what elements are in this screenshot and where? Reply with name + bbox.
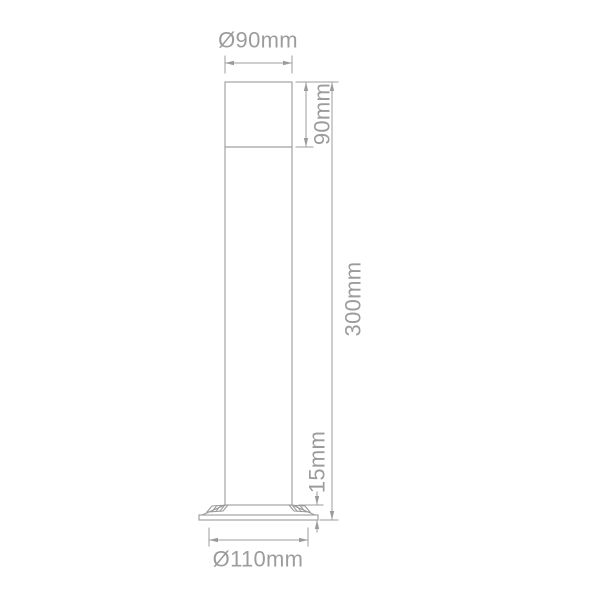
bollard-technical-drawing: Ø90mm 90mm 300mm 15mm Ø110mm <box>0 0 600 600</box>
dimension-arrow <box>304 82 308 91</box>
drawing-canvas: Ø90mm 90mm 300mm 15mm Ø110mm <box>0 0 600 600</box>
dimension-arrow <box>209 538 218 542</box>
dimension-arrow <box>299 538 308 542</box>
base-plate <box>199 515 318 520</box>
dimension-arrow <box>315 496 319 505</box>
bollard-outline <box>199 82 318 520</box>
bollard-body <box>225 147 292 505</box>
label-top-diameter: Ø90mm <box>218 28 298 53</box>
dimension-arrow <box>283 61 292 65</box>
dimension-arrow <box>315 520 319 529</box>
dimension-labels: Ø90mm 90mm 300mm 15mm Ø110mm <box>213 28 366 572</box>
dimension-arrow <box>304 138 308 147</box>
label-overall-height: 300mm <box>341 262 366 337</box>
dimension-arrow <box>225 61 234 65</box>
label-head-height: 90mm <box>310 83 335 145</box>
label-base-height: 15mm <box>305 431 330 493</box>
dimension-arrow <box>330 511 334 520</box>
label-base-diameter: Ø110mm <box>213 547 304 572</box>
bollard-head <box>225 82 292 147</box>
